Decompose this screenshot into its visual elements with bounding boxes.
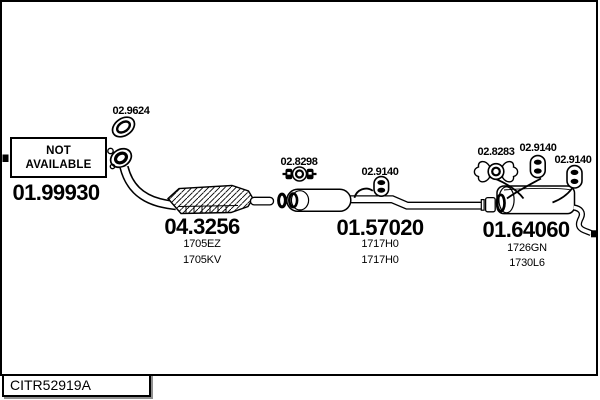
centre-silencer-shape [279, 189, 351, 211]
variant-centre-silencer-2: 1717H0 [340, 254, 420, 266]
left-connector-marker [3, 155, 9, 163]
drawing-code: CITR52919A [10, 377, 91, 393]
fitting-label-hanger-centre[interactable]: 02.9140 [345, 166, 415, 178]
intermediate-pipe [350, 196, 483, 209]
fitting-label-gasket[interactable]: 02.9624 [96, 105, 166, 117]
not-available-line2: AVAILABLE [26, 158, 92, 172]
variant-catalyst-1: 1705EZ [162, 238, 242, 250]
part-number-front-pipe[interactable]: 01.99930 [0, 181, 116, 204]
exhaust-diagram-page: NOT AVAILABLE 02.9624 02.8298 02.9140 02… [0, 0, 600, 400]
fitting-label-clamp-front[interactable]: 02.8298 [264, 156, 334, 168]
right-connector-marker [591, 230, 597, 237]
variant-rear-silencer-1: 1726GN [487, 242, 567, 254]
part-number-catalyst[interactable]: 04.3256 [142, 215, 262, 238]
part-number-centre-silencer[interactable]: 01.57020 [320, 216, 440, 239]
variant-centre-silencer-1: 1717H0 [340, 238, 420, 250]
fitting-label-hanger-rear-front[interactable]: 02.9140 [503, 142, 573, 154]
gasket-ring-icon [109, 113, 138, 141]
rear-hanger-back-icon [567, 166, 582, 188]
rear-clamp-icon [474, 162, 517, 182]
variant-rear-silencer-2: 1730L6 [487, 257, 567, 269]
not-available-box: NOT AVAILABLE [10, 137, 107, 178]
drawing-code-box: CITR52919A [2, 374, 151, 397]
rear-silencer-shape [497, 186, 575, 214]
centre-hanger-icon [355, 177, 389, 198]
variant-catalyst-2: 1705KV [162, 254, 242, 266]
front-clamp-icon [283, 167, 317, 181]
front-flange-icon [107, 145, 135, 171]
part-number-rear-silencer[interactable]: 01.64060 [466, 218, 586, 241]
rear-inlet-connector [481, 198, 495, 212]
catalytic-converter-shape [168, 186, 274, 214]
fitting-label-hanger-rear-back[interactable]: 02.9140 [538, 154, 600, 166]
not-available-line1: NOT [46, 144, 71, 158]
